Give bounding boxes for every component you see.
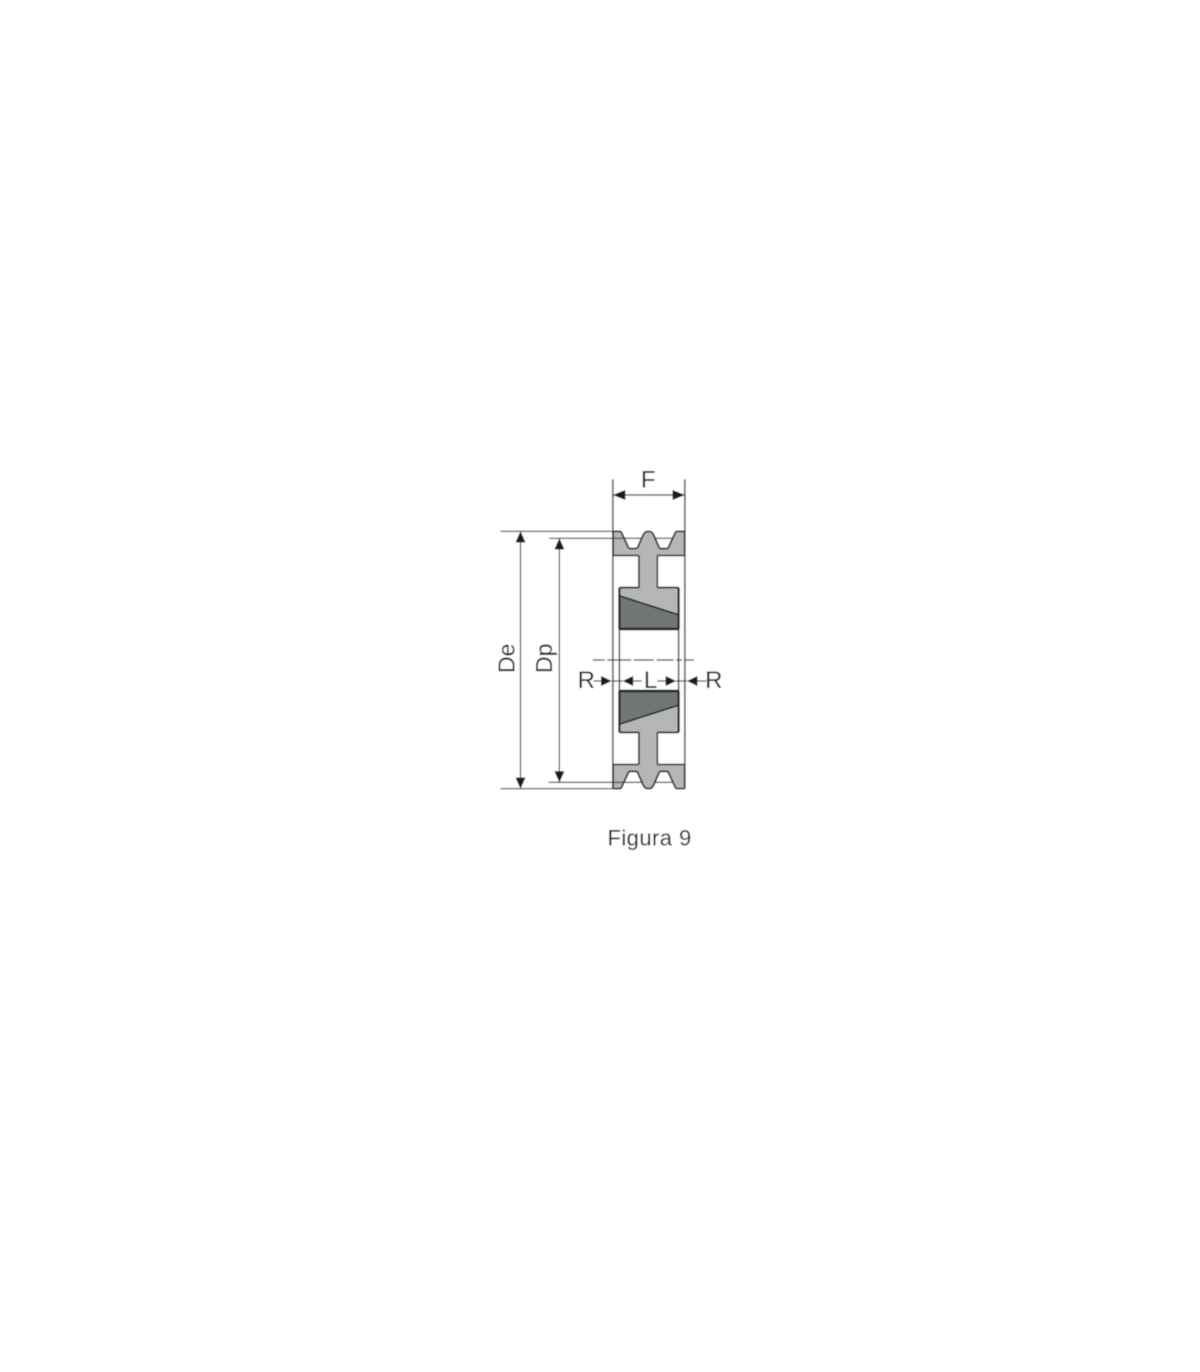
svg-text:Figura 9: Figura 9 <box>607 826 691 851</box>
svg-text:R: R <box>578 667 595 694</box>
svg-text:Dp: Dp <box>531 644 557 673</box>
svg-text:F: F <box>641 467 656 494</box>
svg-text:De: De <box>493 644 519 673</box>
svg-text:R: R <box>705 667 722 694</box>
svg-text:L: L <box>644 667 657 694</box>
